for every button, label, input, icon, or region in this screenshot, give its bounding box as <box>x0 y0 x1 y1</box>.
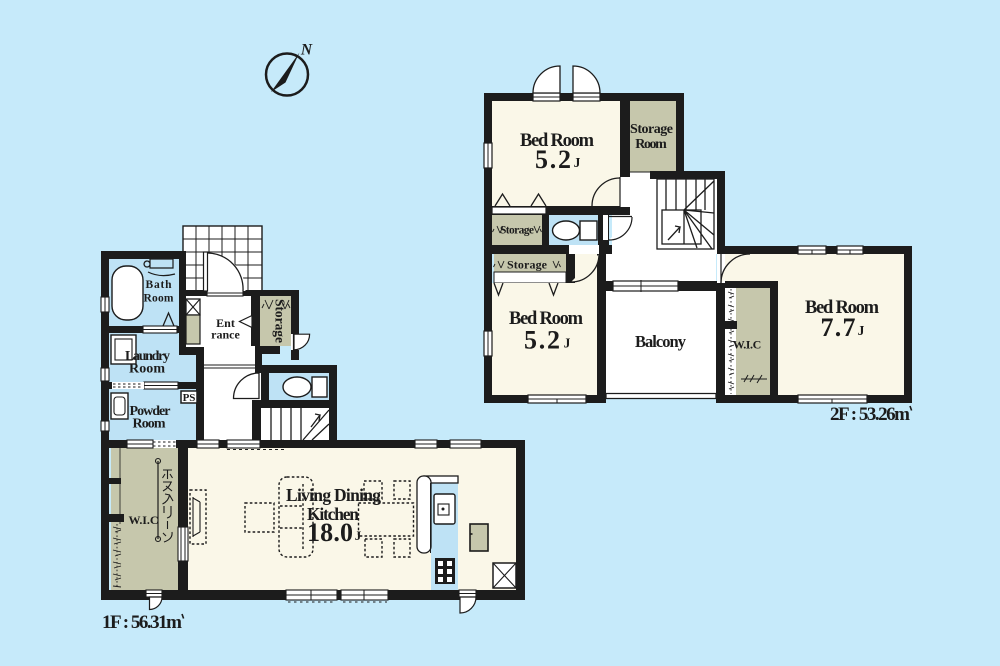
svg-text:1F : 56.31m: 1F : 56.31m <box>102 612 182 633</box>
svg-text:PS: PS <box>183 392 196 404</box>
svg-text:5.2: 5.2 <box>524 326 560 355</box>
svg-text:Bath: Bath <box>146 279 173 291</box>
svg-text:Room: Room <box>133 417 166 432</box>
svg-text:7.7: 7.7 <box>821 313 856 342</box>
svg-text:Storage: Storage <box>500 225 534 237</box>
svg-text:Storage: Storage <box>273 299 288 343</box>
svg-text:W.I.C: W.I.C <box>129 513 159 527</box>
svg-text:Storage: Storage <box>630 122 673 137</box>
svg-text:Living Dining: Living Dining <box>286 485 381 505</box>
svg-text:W.I.C: W.I.C <box>733 338 762 352</box>
svg-text:J: J <box>574 155 581 170</box>
svg-text:Room: Room <box>144 293 174 305</box>
svg-text:Room: Room <box>129 362 165 377</box>
svg-text:J: J <box>355 528 362 543</box>
svg-text:J: J <box>564 336 571 351</box>
svg-text:Storage: Storage <box>507 258 548 272</box>
svg-text:J: J <box>858 323 865 338</box>
svg-text:N: N <box>300 42 313 59</box>
svg-text:2F : 53.26m: 2F : 53.26m <box>830 404 910 425</box>
svg-text:Balcony: Balcony <box>635 332 687 351</box>
svg-text:18.0: 18.0 <box>307 518 353 547</box>
svg-text:rance: rance <box>211 328 240 342</box>
svg-text:5.2: 5.2 <box>535 145 571 174</box>
svg-text:Room: Room <box>635 137 667 152</box>
